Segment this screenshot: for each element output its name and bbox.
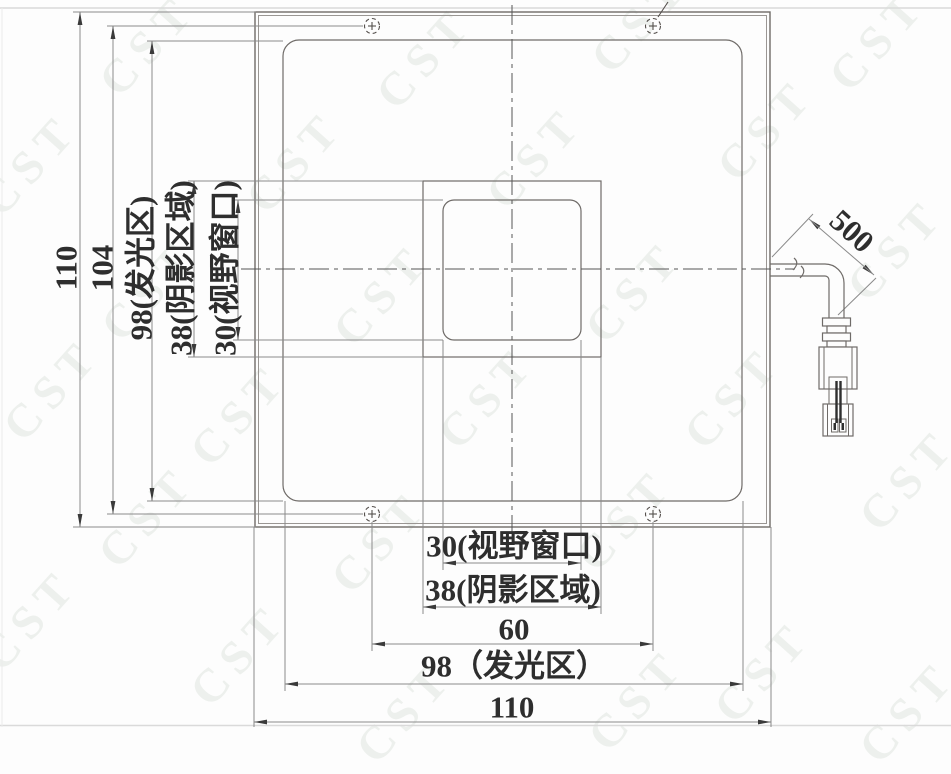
cable-break-icon (793, 258, 804, 278)
dim-label-left-light: 98(发光区) (126, 196, 157, 341)
dimension-arrows (78, 12, 874, 724)
cable-outline (770, 258, 844, 318)
page-border-rules (0, 8, 951, 727)
screw-hole-symbol (646, 2, 669, 34)
dim-label-bottom-window: 30(视野窗口) (426, 531, 602, 562)
engineering-drawing-canvas: CST CST CST CST CST CST CST CST CST CST … (0, 0, 951, 727)
dim-label-left-mount: 104 (87, 245, 118, 292)
dim-label-bottom-mount: 60 (499, 614, 530, 645)
dim-label-left-shadow: 38(阴影区域) (166, 180, 197, 356)
dim-label-bottom-overall: 110 (490, 692, 535, 723)
drawing-linework (0, 0, 951, 727)
screw-hole-symbol (646, 507, 661, 522)
screw-hole-symbol (365, 19, 380, 34)
center-lines (241, 5, 795, 534)
dim-label-bottom-shadow: 38(阴影区域) (425, 575, 601, 606)
dim-label-bottom-light: 98（发光区） (421, 651, 607, 682)
connector-outline (819, 318, 857, 436)
screw-holes (365, 2, 669, 522)
screw-hole-symbol (365, 507, 380, 522)
dim-label-left-overall: 110 (51, 246, 82, 291)
dim-label-left-window: 30(视野窗口) (210, 180, 241, 356)
